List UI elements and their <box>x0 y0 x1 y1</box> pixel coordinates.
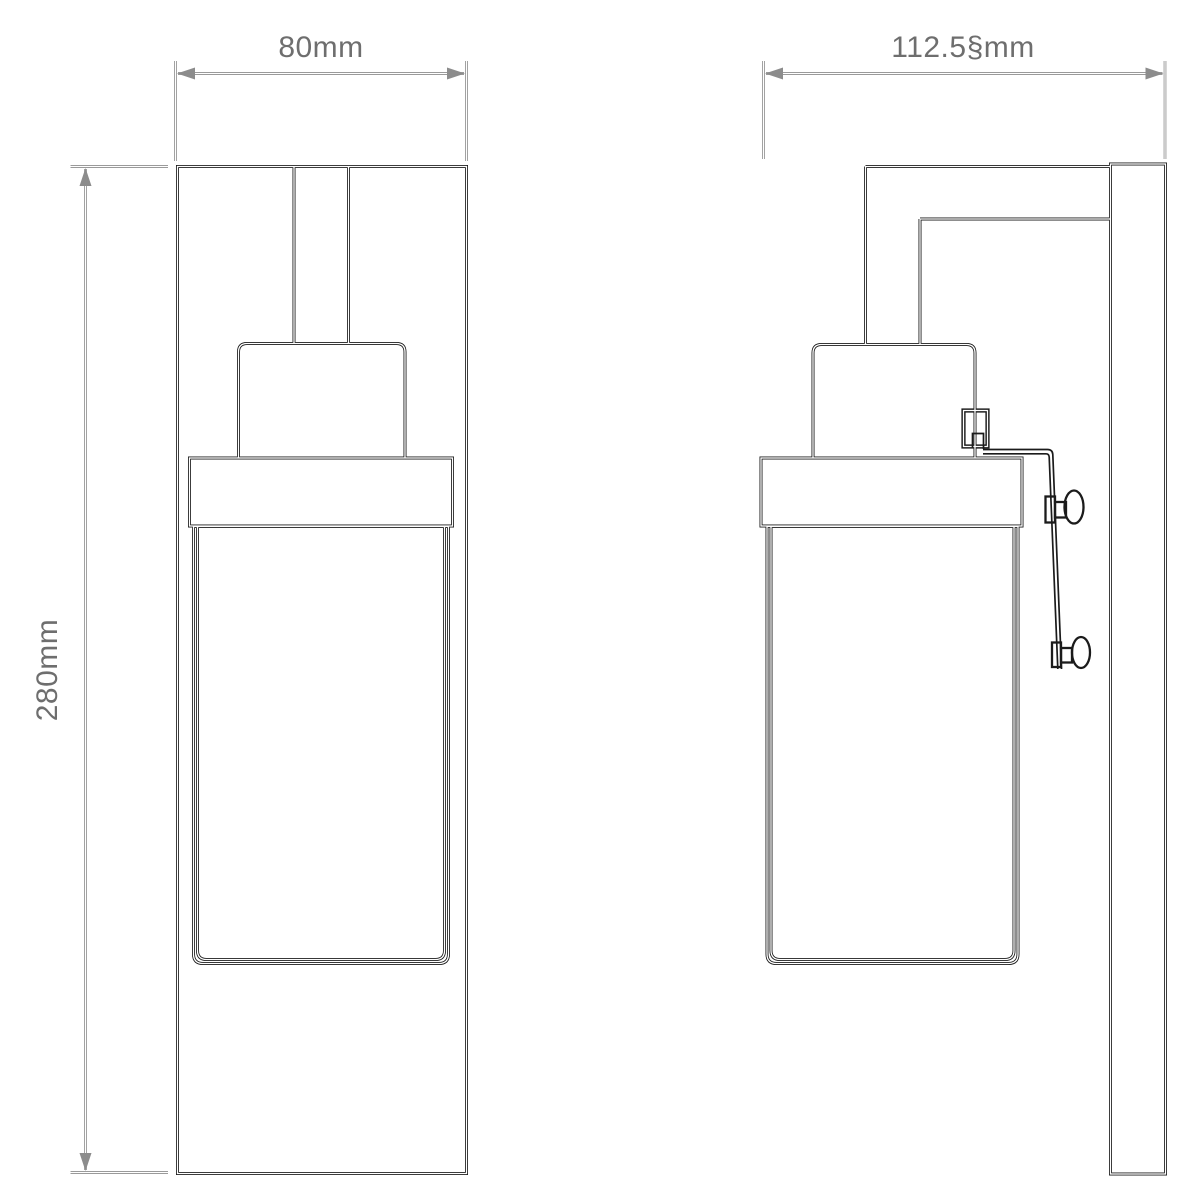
depth-arrow-right-icon <box>1146 68 1164 80</box>
elevation-drawing: 80mm 112.5§mm 280mm <box>0 0 1200 1200</box>
width-dimension-label: 80mm <box>278 31 363 64</box>
width-arrow-right-icon <box>447 68 465 80</box>
lower-toggle-nub <box>1061 648 1072 663</box>
height-dimension-label: 280mm <box>31 619 64 722</box>
dimension-arrowheads <box>80 68 1164 1172</box>
height-arrow-top-icon <box>80 168 92 186</box>
width-arrow-left-icon <box>177 68 195 80</box>
cable-inner-line <box>983 454 1058 669</box>
upper-toggle-knob <box>1065 491 1084 524</box>
lower-toggle-knob <box>1072 637 1090 668</box>
height-arrow-bottom-icon <box>80 1153 92 1171</box>
depth-arrow-left-icon <box>765 68 783 80</box>
technical-drawing-canvas: 80mm 112.5§mm 280mm <box>0 0 1200 1200</box>
depth-dimension-label: 112.5§mm <box>891 31 1035 64</box>
